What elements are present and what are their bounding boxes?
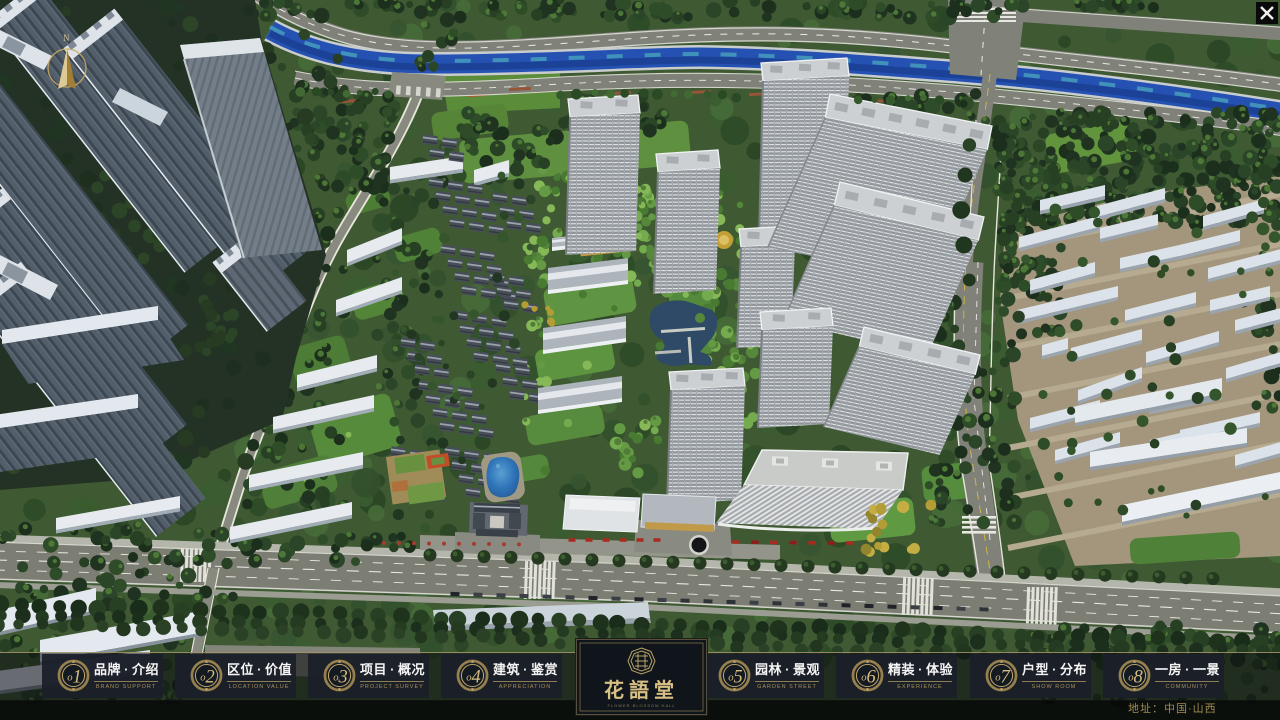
svg-text:花語堂: 花語堂 [604,678,679,702]
svg-text:FLOWER BLOSSOM HALL: FLOWER BLOSSOM HALL [607,703,675,708]
svg-text:N: N [63,33,70,43]
